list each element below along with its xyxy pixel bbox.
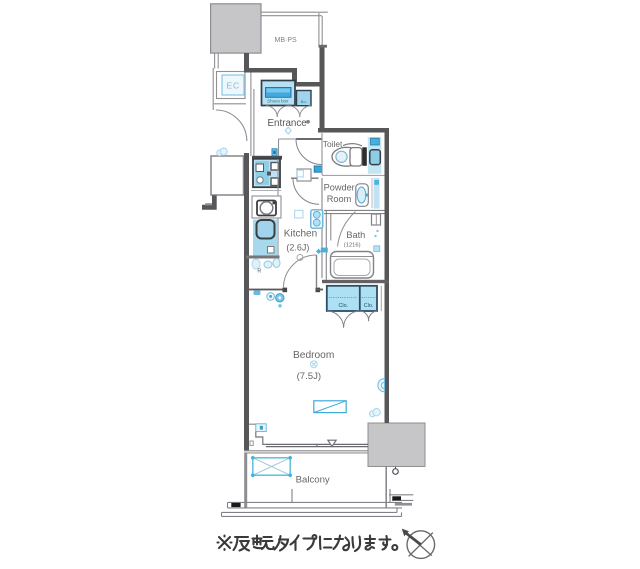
svg-text:Bo.: Bo. [301,99,307,104]
svg-text:(2.6J): (2.6J) [286,242,309,252]
svg-text:Balcony: Balcony [296,475,330,486]
svg-text:Shoes box: Shoes box [267,99,289,104]
svg-text:EC: EC [227,81,241,91]
svg-text:R: R [257,269,261,275]
svg-text:Bedroom: Bedroom [293,350,334,361]
svg-text:Kitchen: Kitchen [284,229,317,240]
svg-text:Clo.: Clo. [364,303,374,309]
svg-text:Room: Room [327,194,352,204]
svg-text:Toilet: Toilet [323,139,343,149]
svg-text:(1216): (1216) [344,242,361,248]
svg-text:Bath: Bath [346,230,365,240]
svg-text:(7.5J): (7.5J) [297,371,322,382]
svg-text:Powder: Powder [324,182,355,192]
svg-text:MB·PS: MB·PS [275,37,298,44]
svg-text:Clo.: Clo. [339,303,349,309]
